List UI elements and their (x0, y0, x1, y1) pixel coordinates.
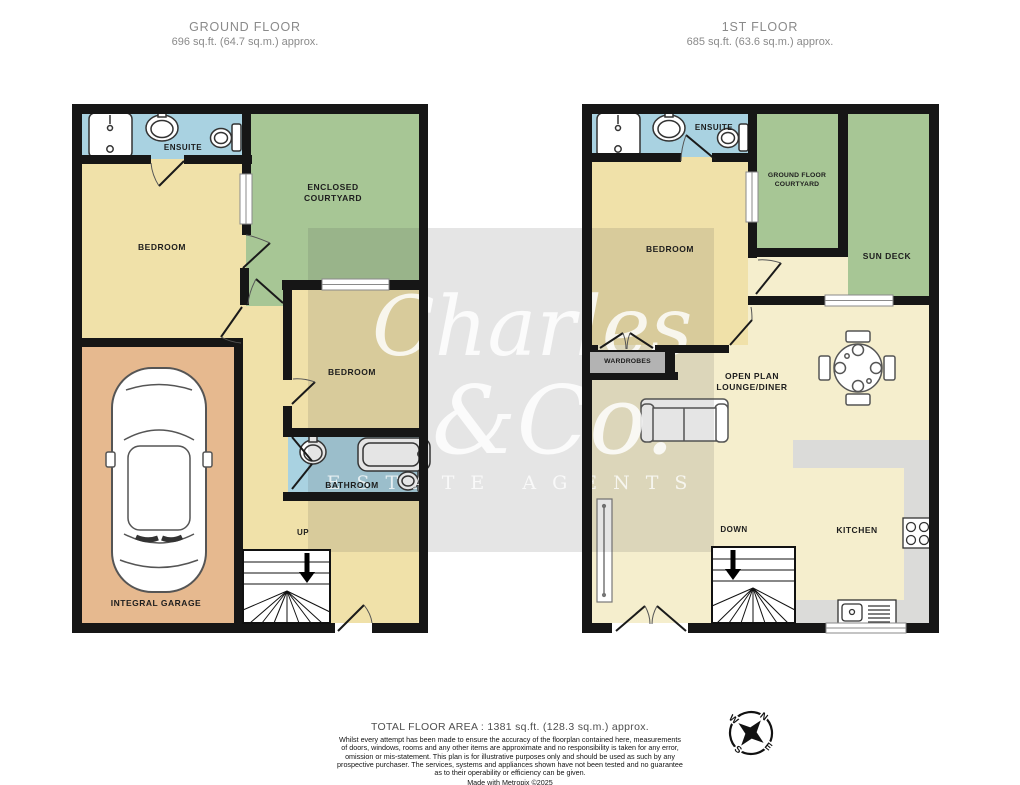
stairs-up (243, 550, 330, 623)
ground-floor-courtyard-label: GROUND FLOOR COURTYARD (747, 172, 847, 190)
first-ensuite-label: ENSUITE (654, 123, 774, 133)
ground-floor-title: GROUND FLOOR (95, 20, 395, 34)
enclosed-courtyard-label: ENCLOSED COURTYARD (263, 182, 403, 204)
floorplan-canvas: GROUND FLOOR 696 sq.ft. (64.7 sq.m.) app… (0, 0, 1020, 785)
integral-garage-label: INTEGRAL GARAGE (76, 598, 236, 609)
window-icon (240, 172, 906, 633)
ground-floor-area: 696 sq.ft. (64.7 sq.m.) approx. (95, 36, 395, 48)
ground-ensuite-label: ENSUITE (123, 143, 243, 153)
compass-west: W (726, 713, 740, 727)
first-floor-area: 685 sq.ft. (63.6 sq.m.) approx. (610, 36, 910, 48)
disclaimer-text: Whilst every attempt has been made to en… (210, 736, 810, 777)
kitchen-label: KITCHEN (787, 525, 927, 536)
stairs-down (712, 547, 795, 623)
compass-icon: N E S W (722, 705, 780, 763)
bathroom-label: BATHROOM (282, 480, 422, 491)
ground-bedroom-middle-label: BEDROOM (282, 367, 422, 378)
lounge-diner-label: OPEN PLAN LOUNGE/DINER (682, 371, 822, 393)
first-floor-title-block: 1ST FLOOR 685 sq.ft. (63.6 sq.m.) approx… (610, 20, 910, 48)
ground-bedroom-left-label: BEDROOM (92, 242, 232, 253)
compass-east: E (762, 741, 774, 754)
credit-text: Made with Metropix ©2025 (210, 778, 810, 785)
ground-floor-title-block: GROUND FLOOR 696 sq.ft. (64.7 sq.m.) app… (95, 20, 395, 48)
total-floor-area: TOTAL FLOOR AREA : 1381 sq.ft. (128.3 sq… (210, 721, 810, 733)
stairs-down-label: DOWN (704, 525, 764, 535)
first-bedroom-label: BEDROOM (600, 244, 740, 255)
stairs-up-label: UP (283, 528, 323, 538)
first-floor-title: 1ST FLOOR (610, 20, 910, 34)
sun-deck-label: SUN DECK (827, 251, 947, 262)
openings-layer (0, 0, 1020, 785)
